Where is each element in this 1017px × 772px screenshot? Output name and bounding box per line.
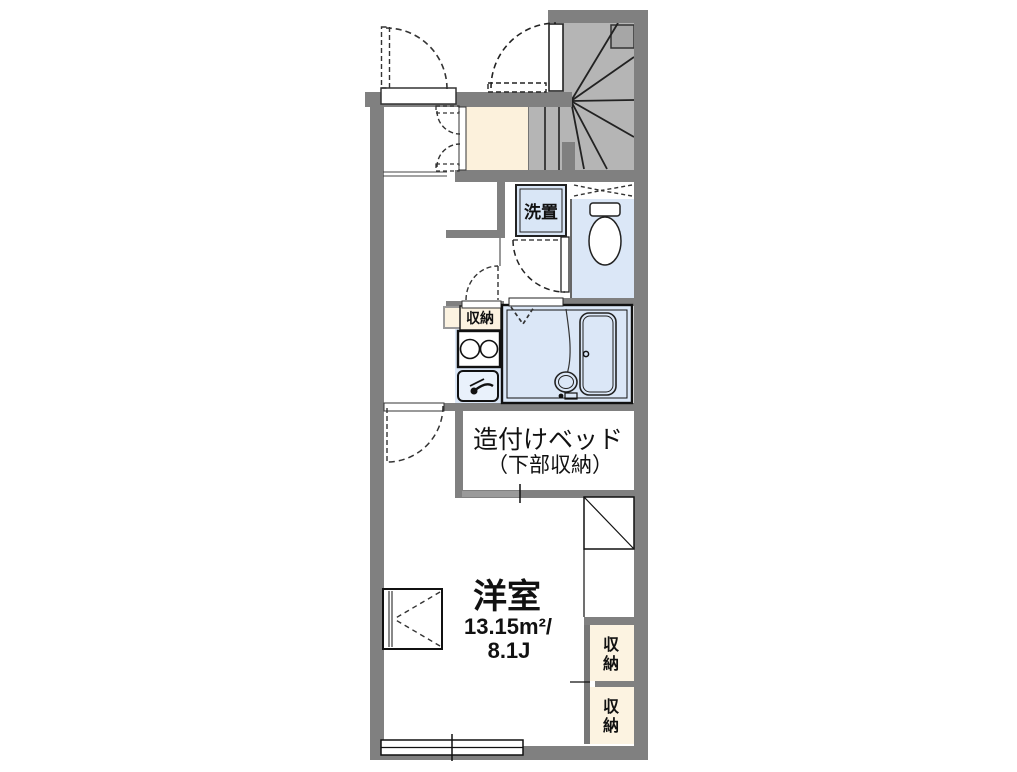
main-room-door-arc — [387, 406, 443, 462]
entrance-door-closed — [488, 83, 546, 92]
kitchen: 収納 — [444, 306, 501, 401]
storage-upper-label-1: 収 — [603, 636, 620, 654]
main-room-area-m2: 13.15m²/ — [464, 614, 552, 639]
storage-sliding-door — [584, 625, 590, 744]
entrance-door — [488, 23, 563, 92]
storage-lower-label-1: 収 — [603, 698, 620, 716]
wall-storage-top — [584, 617, 634, 625]
washroom-door-arc — [513, 240, 565, 292]
washer-label: 洗置 — [524, 202, 558, 222]
left-door-threshold — [381, 88, 456, 104]
double-door-panel-bottom — [436, 164, 459, 171]
entry-step-line — [383, 172, 447, 176]
entry-genkan-floor — [466, 107, 528, 170]
bathtub — [580, 313, 616, 395]
toilet-tank — [590, 203, 620, 216]
wall-bed-left — [455, 403, 463, 498]
kitchen-door-arc — [466, 266, 498, 300]
bed-sliding-panel — [462, 491, 520, 497]
entrance-door-swing-arc — [491, 23, 556, 88]
stair-center-post — [562, 142, 575, 170]
wall-stair-top — [548, 10, 648, 23]
double-door-track — [459, 107, 466, 170]
kitchen-door-threshold — [462, 301, 501, 308]
kitchen-door — [462, 238, 501, 308]
entrance-door-leaf — [549, 24, 563, 91]
floor-plan: 洗置 収納 — [0, 0, 1017, 772]
storage-upper-label-2: 納 — [603, 654, 619, 673]
main-room-area-jo: 8.1J — [488, 638, 531, 663]
main-room-labels: 洋室 13.15m²/ 8.1J — [464, 577, 552, 663]
bathroom — [502, 298, 632, 403]
wall-washroom-bottom — [446, 230, 505, 238]
kitchen-storage-label: 収納 — [466, 310, 494, 326]
left-door-leaf — [382, 27, 390, 88]
toilet-bowl — [589, 217, 621, 265]
wall-storage-divider — [595, 681, 634, 687]
exterior-left-door — [381, 27, 456, 104]
storage-lower-label-2: 納 — [603, 716, 619, 735]
main-room-door — [384, 403, 444, 462]
bed-label-line2: （下部収納） — [487, 454, 613, 477]
stove-burner-left — [461, 340, 480, 359]
left-door-swing-arc — [386, 28, 447, 89]
main-room-name: 洋室 — [473, 577, 541, 616]
double-door-arc-top — [437, 111, 460, 134]
floor-plan-drawing: 洗置 収納 — [0, 0, 1017, 772]
wall-genkan-bottom — [455, 170, 634, 182]
bath-tap-left — [559, 394, 564, 399]
washer-space: 洗置 — [516, 185, 566, 236]
entry-double-doors — [436, 106, 466, 171]
wall-right — [634, 10, 648, 760]
washroom-door — [513, 237, 569, 292]
main-room-door-threshold — [384, 403, 444, 411]
washroom-door-leaf — [561, 237, 569, 292]
bath-door-threshold — [509, 298, 563, 306]
kitchen-side-nook — [444, 307, 461, 328]
wall-left — [370, 92, 384, 760]
stove-burner-right — [481, 341, 498, 358]
double-door-arc-bottom — [437, 144, 460, 167]
casement-window — [383, 589, 442, 649]
wall-room-top — [444, 403, 634, 411]
double-door-panel-top — [436, 106, 459, 113]
bed-label-line1: 造付けベッド — [473, 426, 623, 454]
wall-washroom-right — [497, 180, 505, 237]
